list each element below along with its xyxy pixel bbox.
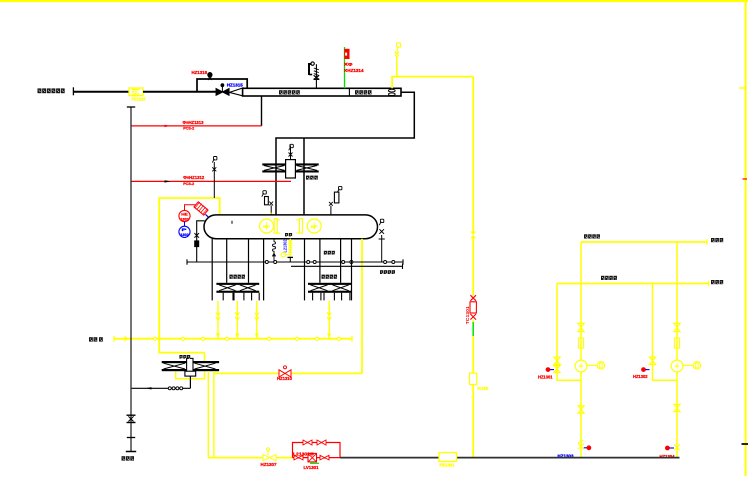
svg-text:✕HZ1314: ✕HZ1314 (344, 68, 365, 73)
svg-text:Φ≡HZ1313: Φ≡HZ1313 (183, 120, 205, 125)
svg-text:02: 02 (311, 225, 316, 229)
svg-text:FE1315: FE1315 (132, 96, 146, 101)
svg-text:HE: HE (181, 211, 188, 216)
svg-text:LV1301: LV1301 (304, 465, 320, 470)
svg-text:P: P (182, 227, 188, 232)
svg-text:HZ1318: HZ1318 (192, 70, 208, 75)
svg-text:PE1301: PE1301 (440, 462, 456, 467)
svg-text:TC1301: TC1301 (465, 306, 470, 325)
svg-text:Φ≡HZ1312: Φ≡HZ1312 (183, 175, 205, 180)
svg-text:PCS-2: PCS-2 (183, 126, 194, 130)
svg-text:L21301Φ: L21301Φ (293, 451, 315, 456)
svg-text:✕Φ: ✕Φ (344, 62, 353, 68)
svg-text:HZ1310: HZ1310 (277, 376, 293, 381)
svg-text:HZ1301: HZ1301 (538, 374, 553, 379)
svg-text:1302: 1302 (180, 217, 189, 221)
svg-text:HZ1302: HZ1302 (633, 374, 648, 379)
svg-text:1302: 1302 (180, 233, 189, 237)
svg-text:L21302: L21302 (283, 239, 288, 253)
svg-text:PC1301: PC1301 (478, 386, 489, 391)
svg-text:01: 01 (264, 225, 269, 229)
svg-text:PCS-2: PCS-2 (183, 182, 194, 186)
svg-text:HZ1315: HZ1315 (227, 83, 244, 88)
svg-text:HZ1307: HZ1307 (261, 462, 278, 467)
